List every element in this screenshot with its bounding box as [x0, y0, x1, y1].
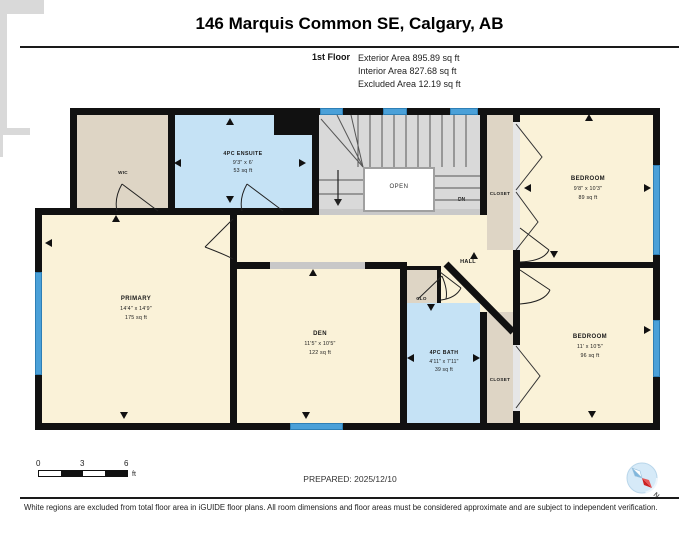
- arrow-icon-up: [309, 269, 317, 276]
- diagonal-wall: [446, 264, 513, 332]
- arrow-icon-right: [299, 159, 306, 167]
- door-arc-wic: [116, 184, 158, 211]
- room-label-clo: CLO: [406, 283, 437, 309]
- footer-divider: [20, 497, 679, 499]
- room-label-primary: PRIMARY 14'4" x 14'9" 175 sq ft: [96, 295, 176, 322]
- bifold-doors: [516, 124, 542, 408]
- door-arc-bedroom-bottom: [520, 270, 550, 304]
- bifold-icon-bottom: [516, 346, 540, 408]
- room-label-closet-top: CLOSET: [484, 178, 516, 204]
- door-arc-primary: [205, 219, 233, 259]
- arrow-icon-left: [174, 159, 181, 167]
- arrow-icon-left: [524, 184, 531, 192]
- door-arc-ensuite: [241, 184, 283, 211]
- plan-annotations: [0, 0, 699, 540]
- arrow-icon-up: [226, 118, 234, 125]
- room-label-bath: 4PC BATH 4'11" x 7'11" 39 sq ft: [409, 349, 479, 374]
- arrow-icon-up: [585, 114, 593, 121]
- scale-unit-label: ft: [132, 471, 136, 478]
- arrow-icon-down: [226, 196, 234, 203]
- room-label-wic: WIC: [93, 157, 153, 183]
- arrow-icon-down: [120, 412, 128, 419]
- room-label-hall: HALL: [438, 246, 498, 272]
- disclaimer-text: White regions are excluded from total fl…: [24, 503, 684, 512]
- arrow-icon-down: [302, 412, 310, 419]
- arrow-icon-down: [550, 251, 558, 258]
- room-label-den: DEN 11'5" x 10'5" 122 sq ft: [280, 330, 360, 357]
- room-label-bedroom-top: BEDROOM 9'8" x 10'3" 89 sq ft: [548, 175, 628, 202]
- bifold-icon-top-1: [516, 124, 542, 190]
- room-label-bedroom-bottom: BEDROOM 11' x 10'5" 96 sq ft: [550, 333, 630, 360]
- arrow-icon-right: [644, 184, 651, 192]
- door-arc-bedroom-top: [520, 228, 549, 262]
- stair-treads: [319, 115, 480, 200]
- arrow-icon-up: [112, 215, 120, 222]
- scale-tick-3: 3: [80, 459, 84, 468]
- arrow-icon-right: [644, 326, 651, 334]
- prepared-date: PREPARED: 2025/12/10: [250, 474, 450, 484]
- arrow-icon-left: [45, 239, 52, 247]
- scale-tick-6: 6: [124, 459, 128, 468]
- room-label-closet-bottom: CLOSET: [484, 364, 516, 390]
- bifold-icon-top-2: [516, 192, 538, 250]
- scale-bar: [38, 470, 128, 477]
- stair-direction-arrow: [334, 170, 342, 206]
- floorplan-page: 146 Marquis Common SE, Calgary, AB 1st F…: [0, 0, 699, 540]
- arrow-icon-down: [588, 411, 596, 418]
- scale-tick-0: 0: [36, 459, 40, 468]
- room-label-ensuite: 4PC ENSUITE 9'3" x 6' 53 sq ft: [203, 150, 283, 176]
